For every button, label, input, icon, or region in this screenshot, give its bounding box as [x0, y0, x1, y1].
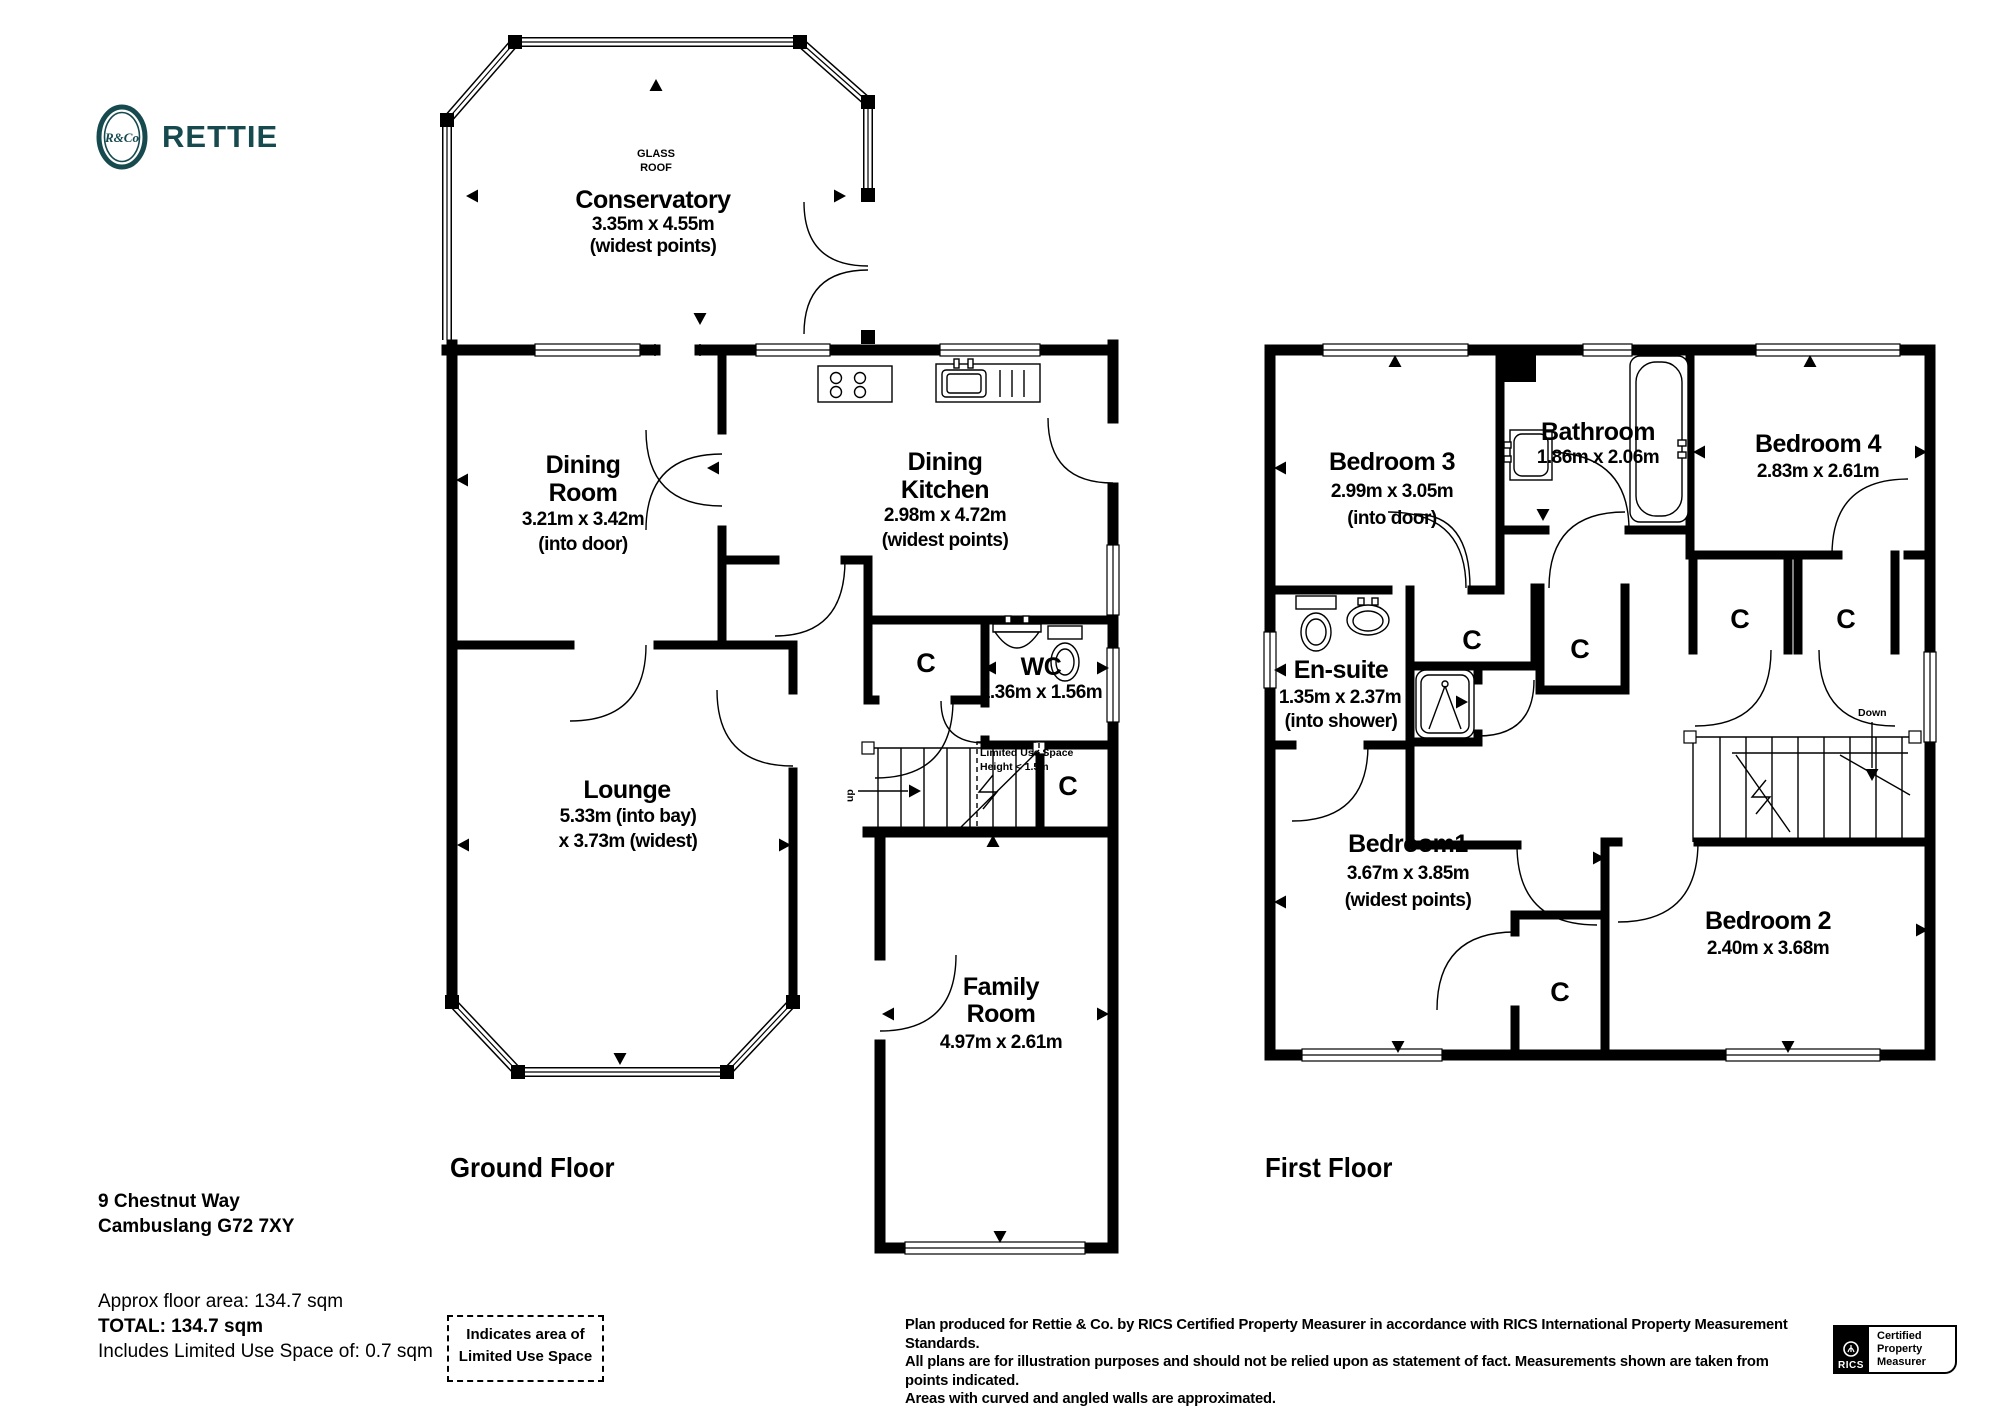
bedroom3-dims: 2.99m x 3.05m: [1331, 481, 1453, 502]
dining-kitchen-name-1: Dining: [908, 448, 983, 476]
legend-line-1: Indicates area of: [449, 1324, 602, 1346]
duct-icon: [1502, 352, 1536, 382]
cupboard-label: C: [1550, 977, 1570, 1007]
floor-area-summary: Approx floor area: 134.7 sqm TOTAL: 134.…: [98, 1289, 433, 1364]
area-total: TOTAL: 134.7 sqm: [98, 1314, 433, 1339]
floorplan-page: R&Co RETTIE: [0, 0, 2000, 1414]
dining-kitchen-dims: 2.98m x 4.72m: [884, 505, 1006, 526]
first-stairs: Down: [1684, 707, 1921, 842]
rics-badge: RICS Certified Property Measurer: [1833, 1325, 1957, 1374]
conservatory-door-arc: [804, 270, 868, 334]
ground-floor-plan: up Limited Use Space Height < 1.5m GLASS…: [440, 35, 1119, 1254]
ensuite-toilet-icon: [1296, 596, 1336, 651]
ensuite-basin-icon: [1347, 598, 1389, 635]
ground-internal-walls: [452, 350, 1113, 1002]
ground-stairs: up Limited Use Space Height < 1.5m: [844, 742, 1074, 830]
ground-floor-title: Ground Floor: [450, 1152, 615, 1184]
limited-use-line1: Limited Use Space: [980, 747, 1074, 759]
bedroom4-dims: 2.83m x 2.61m: [1757, 461, 1879, 482]
family-room-name-1: Family: [963, 973, 1040, 1001]
conservatory-name: Conservatory: [575, 186, 731, 214]
cupboard-label: C: [916, 648, 936, 678]
wc-dims: 1.36m x 1.56m: [980, 682, 1102, 703]
conservatory-dims: 3.35m x 4.55m: [592, 214, 714, 235]
bedroom3-note: (into door): [1347, 508, 1437, 529]
ensuite-dims: 1.35m x 2.37m: [1279, 687, 1401, 708]
ground-doors: [570, 418, 1113, 1031]
area-approx: Approx floor area: 134.7 sqm: [98, 1289, 433, 1314]
first-floor-title: First Floor: [1265, 1152, 1392, 1184]
property-address: 9 Chestnut Way Cambuslang G72 7XY: [98, 1189, 294, 1239]
bedroom3-name: Bedroom 3: [1329, 448, 1455, 476]
area-includes: Includes Limited Use Space of: 0.7 sqm: [98, 1339, 433, 1364]
rics-certified-label: Certified Property Measurer: [1869, 1325, 1957, 1374]
lounge-dims-2: x 3.73m (widest): [559, 831, 698, 852]
legend-line-2: Limited Use Space: [449, 1346, 602, 1368]
disclaimer-line-2: All plans are for illustration purposes …: [905, 1353, 1792, 1390]
shower-icon: [1416, 670, 1474, 738]
rics-cert-line-2: Property: [1877, 1343, 1955, 1356]
lounge-name: Lounge: [583, 776, 671, 804]
dining-room-name-1: Dining: [546, 451, 621, 479]
wc-name: WC: [1021, 653, 1062, 681]
bedroom1-note: (widest points): [1345, 890, 1472, 911]
bedroom1-dims: 3.67m x 3.85m: [1347, 863, 1469, 884]
dining-room-name-2: Room: [549, 479, 618, 507]
dining-kitchen-name-2: Kitchen: [901, 476, 989, 504]
ground-outer-walls: [447, 345, 1113, 1248]
conservatory-door-arc: [804, 202, 868, 266]
bedroom1-name: Bedroom1: [1348, 830, 1468, 858]
hob-icon: [818, 366, 892, 402]
cupboard-label: C: [1570, 634, 1590, 664]
floorplan-drawing: up Limited Use Space Height < 1.5m GLASS…: [0, 0, 2000, 1414]
bathroom-dims: 1.86m x 2.06m: [1537, 447, 1659, 468]
stairs-up-label: up: [844, 789, 856, 802]
kitchen-sink-icon: [936, 359, 1040, 402]
bedroom2-name: Bedroom 2: [1705, 907, 1831, 935]
stairs-down-label: Down: [1858, 707, 1887, 719]
family-room-name-2: Room: [967, 1000, 1036, 1028]
family-room-dims: 4.97m x 2.61m: [940, 1032, 1062, 1053]
bedroom2-dims: 2.40m x 3.68m: [1707, 938, 1829, 959]
disclaimer-line-1: Plan produced for Rettie & Co. by RICS C…: [905, 1316, 1792, 1353]
disclaimer-line-3: Areas with curved and angled walls are a…: [905, 1390, 1792, 1409]
address-line-2: Cambuslang G72 7XY: [98, 1214, 294, 1239]
disclaimer: Plan produced for Rettie & Co. by RICS C…: [905, 1316, 1792, 1409]
rics-wordmark: RICS: [1838, 1360, 1864, 1371]
ensuite-note: (into shower): [1285, 711, 1398, 732]
dining-room-dims: 3.21m x 3.42m: [522, 509, 644, 530]
cupboard-label: C: [1836, 604, 1856, 634]
limited-use-line2: Height < 1.5m: [980, 761, 1049, 773]
first-floor-plan: Down Bedroom 3 2.99m x 3.05m (into door)…: [1264, 344, 1936, 1061]
bathroom-name: Bathroom: [1541, 418, 1655, 446]
cupboard-label: C: [1730, 604, 1750, 634]
glass-roof-label-1: GLASS: [637, 148, 675, 160]
bedroom4-name: Bedroom 4: [1755, 430, 1882, 458]
ensuite-name: En-suite: [1294, 656, 1389, 684]
cupboard-label: C: [1058, 771, 1078, 801]
dining-kitchen-note: (widest points): [882, 530, 1009, 551]
glass-roof-label-2: ROOF: [640, 162, 672, 174]
address-line-1: 9 Chestnut Way: [98, 1189, 294, 1214]
rics-cert-line-1: Certified: [1877, 1330, 1955, 1343]
lounge-dims-1: 5.33m (into bay): [560, 806, 697, 827]
limited-use-legend: Indicates area of Limited Use Space: [447, 1315, 604, 1382]
rics-logo: RICS: [1833, 1325, 1869, 1374]
lounge-bay-window: [445, 995, 800, 1079]
dining-room-note: (into door): [538, 534, 628, 555]
cupboard-label: C: [1462, 625, 1482, 655]
rics-lion-icon: [1842, 1340, 1860, 1360]
rics-cert-line-3: Measurer: [1877, 1356, 1955, 1369]
conservatory-note: (widest points): [590, 236, 717, 257]
